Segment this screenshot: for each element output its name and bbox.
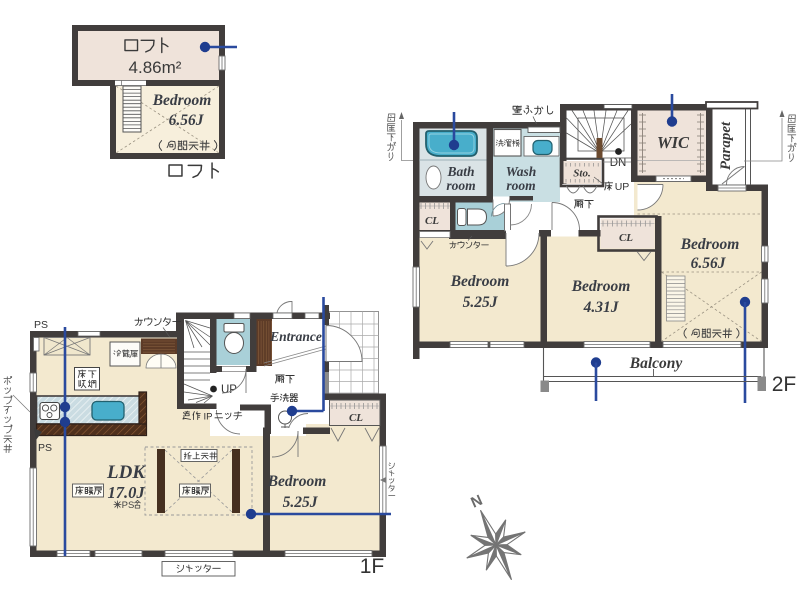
svg-text:CL: CL bbox=[619, 232, 633, 244]
svg-text:DN: DN bbox=[610, 157, 627, 169]
svg-text:Bedroom: Bedroom bbox=[267, 473, 327, 490]
svg-text:CL: CL bbox=[425, 215, 439, 227]
svg-text:1F: 1F bbox=[360, 555, 385, 578]
svg-text:Entrance: Entrance bbox=[269, 329, 322, 344]
svg-text:4.31J: 4.31J bbox=[583, 299, 620, 316]
svg-text:5.25J: 5.25J bbox=[283, 494, 319, 511]
svg-text:WIC: WIC bbox=[657, 133, 690, 152]
svg-text:room: room bbox=[506, 178, 535, 193]
svg-text:PS: PS bbox=[38, 442, 52, 454]
svg-text:Wash: Wash bbox=[506, 164, 537, 179]
svg-text:Bedroom: Bedroom bbox=[152, 92, 212, 109]
svg-text:6.56J: 6.56J bbox=[169, 112, 205, 129]
svg-text:CL: CL bbox=[349, 412, 363, 424]
svg-text:room: room bbox=[446, 178, 475, 193]
svg-text:Bath: Bath bbox=[446, 164, 474, 179]
svg-text:Parapet: Parapet bbox=[718, 121, 734, 170]
svg-text:Bedroom: Bedroom bbox=[680, 236, 740, 253]
svg-text:2F: 2F bbox=[772, 373, 797, 396]
svg-text:LDK: LDK bbox=[106, 462, 146, 483]
svg-text:4.86m²: 4.86m² bbox=[129, 58, 182, 77]
svg-text:6.56J: 6.56J bbox=[691, 255, 727, 272]
svg-text:UP: UP bbox=[221, 384, 237, 396]
svg-text:Sto.: Sto. bbox=[573, 168, 590, 180]
svg-text:PS: PS bbox=[34, 319, 48, 331]
svg-text:Balcony: Balcony bbox=[629, 355, 683, 372]
svg-text:Bedroom: Bedroom bbox=[450, 273, 510, 290]
svg-text:IP: IP bbox=[204, 412, 213, 423]
svg-text:PS: PS bbox=[122, 500, 135, 511]
svg-text:UP: UP bbox=[615, 181, 630, 193]
svg-text:5.25J: 5.25J bbox=[463, 294, 499, 311]
svg-text:Bedroom: Bedroom bbox=[571, 278, 631, 295]
